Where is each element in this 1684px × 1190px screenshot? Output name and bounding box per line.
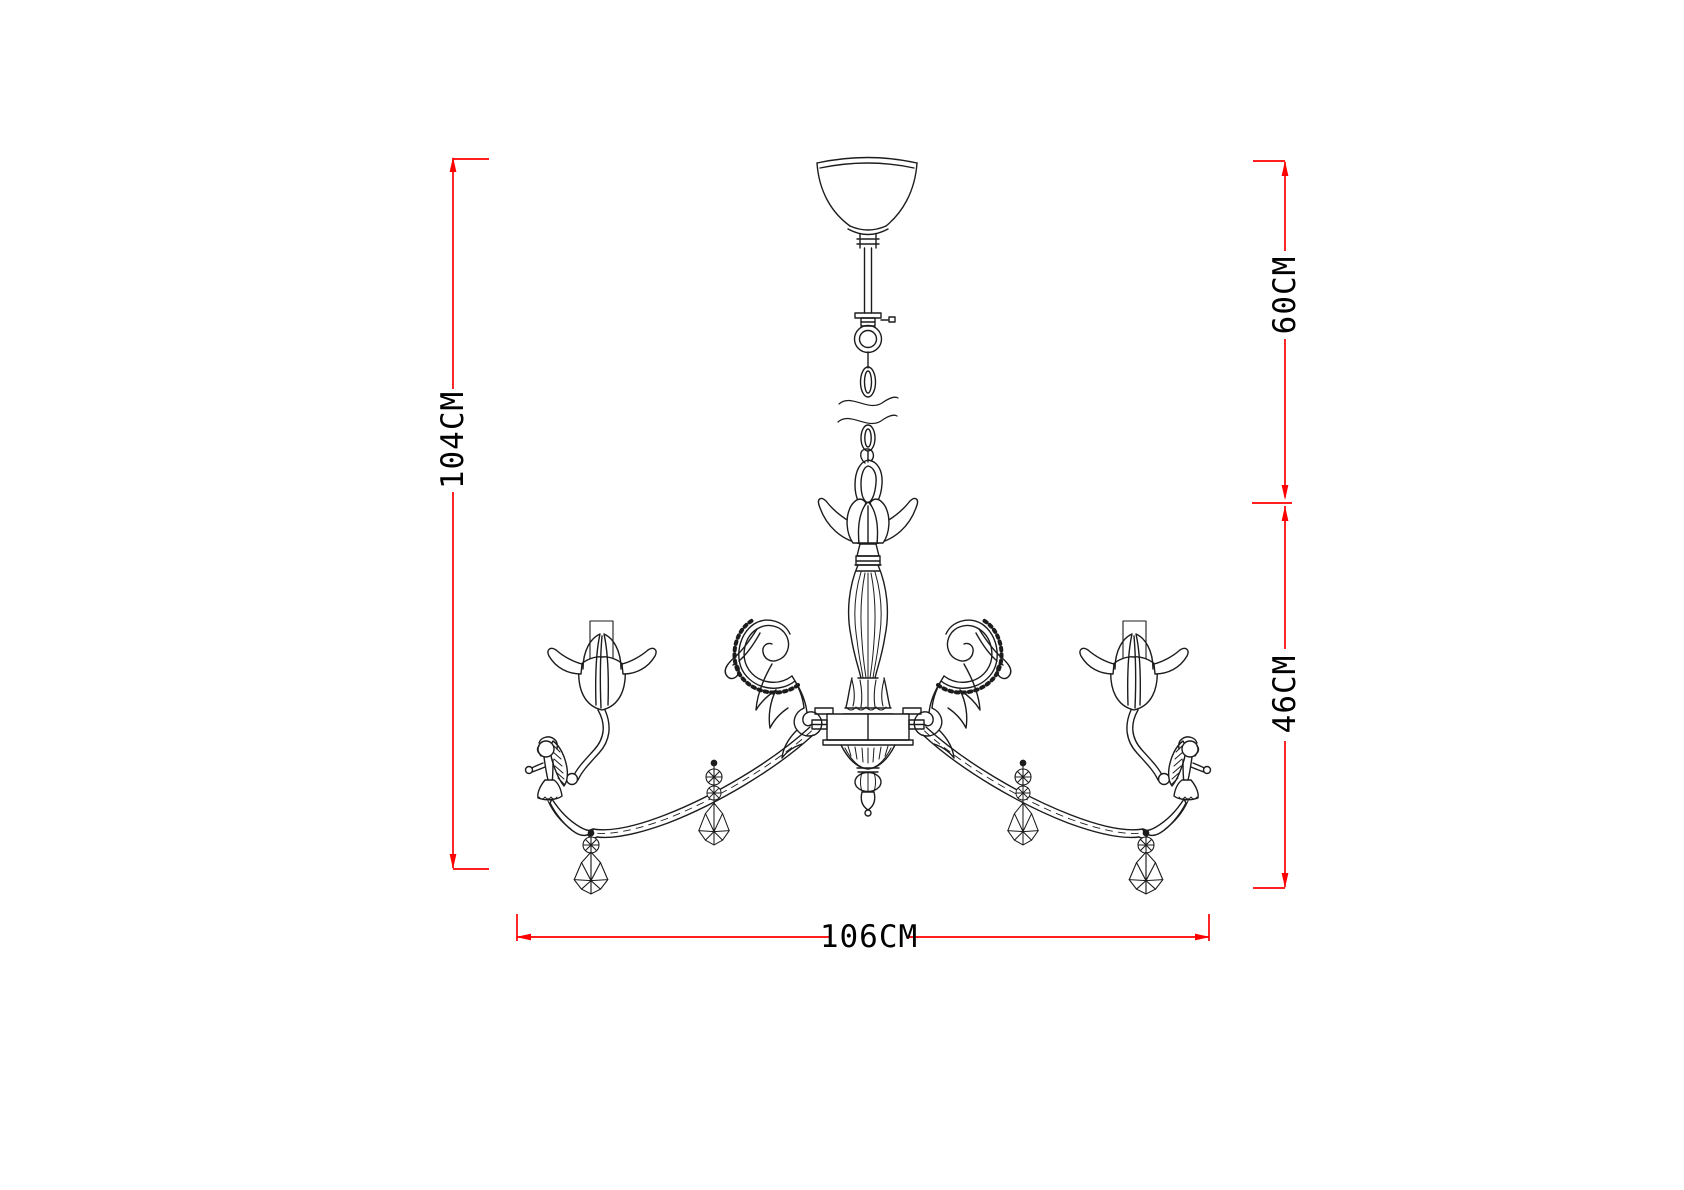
leaf-collar <box>843 678 893 714</box>
bottom-finial <box>841 745 895 816</box>
arm-right <box>923 727 1148 838</box>
fairy-figure-right <box>1143 737 1211 835</box>
scroll-ornament-right <box>914 620 1011 758</box>
suspension-rod <box>855 248 895 326</box>
fairy-figure-left <box>526 737 594 835</box>
dimension-label-suspension-height: 60CM <box>1264 220 1306 370</box>
ceiling-canopy <box>817 158 917 249</box>
crystal-pendant-right-outer <box>1129 830 1163 894</box>
arm-left <box>588 727 813 838</box>
hanging-ring <box>855 326 882 369</box>
center-hub <box>812 708 924 745</box>
dimension-label-body-height: 46CM <box>1264 619 1306 769</box>
technical-drawing-canvas: 104CM 60CM 46CM 106CM <box>0 0 1684 1190</box>
scroll-ornament-left <box>725 620 822 758</box>
crystal-pendant-left-outer <box>574 830 608 894</box>
dimension-label-overall-width: 106CM <box>784 916 954 958</box>
chain-break-symbol <box>838 397 898 423</box>
dimension-label-overall-height: 104CM <box>432 355 474 525</box>
top-flower <box>818 498 917 544</box>
chandelier-drawing <box>0 0 1684 1190</box>
center-column <box>849 544 888 678</box>
chain <box>861 367 876 462</box>
